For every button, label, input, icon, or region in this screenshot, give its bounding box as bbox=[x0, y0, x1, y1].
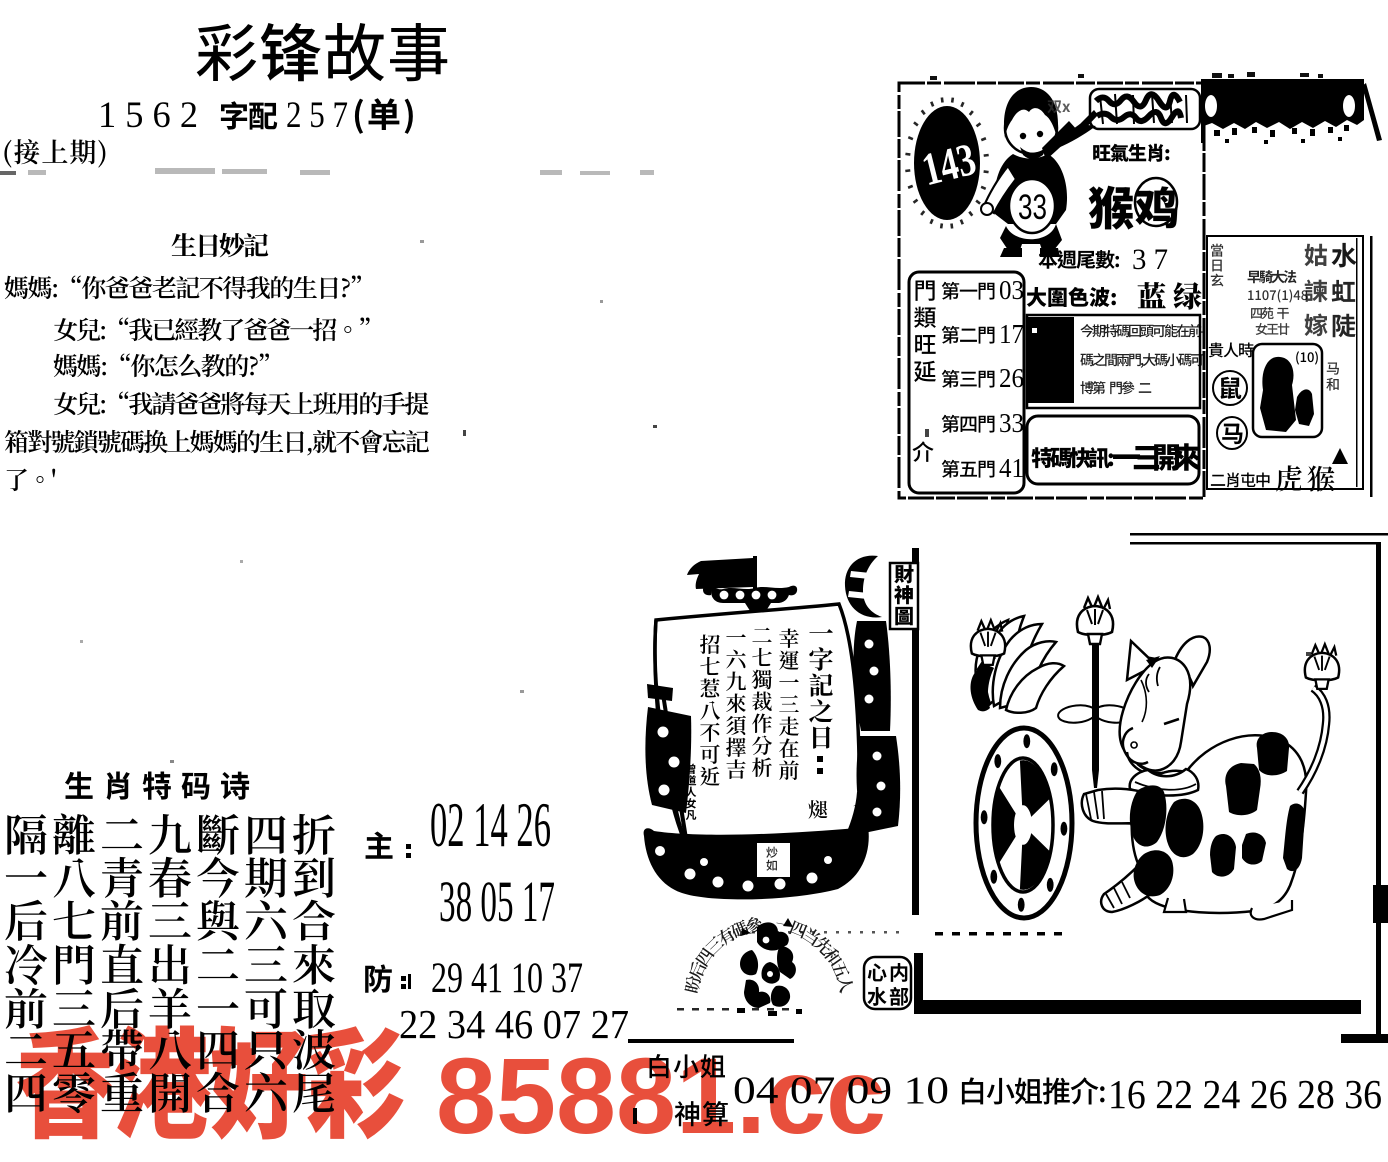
svg-text:29 41 10 37: 29 41 10 37 bbox=[431, 955, 583, 1002]
svg-text:38 05 17: 38 05 17 bbox=[439, 869, 555, 934]
svg-text:33: 33 bbox=[999, 408, 1024, 438]
svg-text:1 5 6 2: 1 5 6 2 bbox=[98, 95, 198, 136]
svg-text:03: 03 bbox=[999, 275, 1024, 305]
svg-text:3 7: 3 7 bbox=[1132, 243, 1168, 276]
svg-text:04 07 09 10: 04 07 09 10 bbox=[733, 1069, 949, 1112]
svg-text:22 34 46 07 27: 22 34 46 07 27 bbox=[399, 1001, 629, 1047]
svg-text:17: 17 bbox=[999, 319, 1024, 349]
svg-text:26: 26 bbox=[999, 363, 1024, 393]
svg-text:41: 41 bbox=[999, 453, 1024, 483]
svg-text:33: 33 bbox=[1018, 188, 1047, 227]
svg-text:2 5 7: 2 5 7 bbox=[286, 95, 348, 136]
svg-text:16 22 24 26 28 36: 16 22 24 26 28 36 bbox=[1108, 1071, 1382, 1117]
svg-text:02 14 26: 02 14 26 bbox=[430, 789, 551, 860]
